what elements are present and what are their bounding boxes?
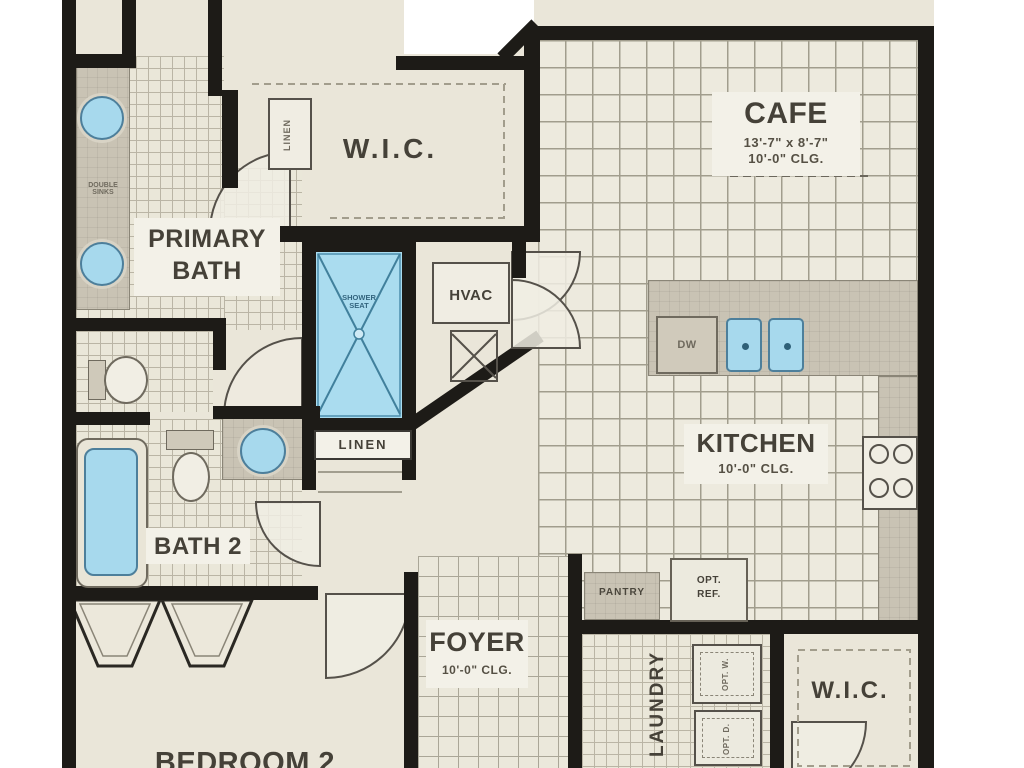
sink-icon <box>80 96 124 140</box>
kitchen-hall-door-arc <box>512 280 580 348</box>
opt-dryer-label: OPT. D. <box>723 717 731 761</box>
dw-label: DW <box>658 340 716 352</box>
primary-bath-label-2: BATH <box>134 258 280 285</box>
bedroom2-door-arc <box>326 594 410 678</box>
linen-closet-hall: LINEN <box>314 430 412 460</box>
wall <box>62 412 150 425</box>
sink-drain <box>742 343 749 350</box>
wall <box>770 634 784 768</box>
linen-upper-label: LINEN <box>283 106 293 164</box>
hall-door-arc <box>224 338 302 416</box>
wall <box>302 418 414 430</box>
cafe-label: CAFE <box>712 98 860 130</box>
sink-icon <box>240 428 286 474</box>
bedroom2-label: BEDROOM 2 <box>120 748 370 768</box>
wall <box>62 0 76 768</box>
wall <box>404 572 418 768</box>
wall <box>524 38 540 242</box>
wall <box>222 90 238 188</box>
foyer-label-box: FOYER 10'-0" CLG. <box>426 620 528 688</box>
wall <box>62 318 226 331</box>
bathtub-basin <box>84 448 138 576</box>
double-sinks-line2: SINKS <box>92 189 113 196</box>
bath2-label-box: BATH 2 <box>146 528 250 564</box>
range-icon <box>862 436 918 510</box>
primary-bath-label-box: PRIMARY BATH <box>134 218 280 296</box>
burner <box>869 478 889 498</box>
bathtub-icon <box>76 438 148 588</box>
burner <box>893 444 913 464</box>
double-sinks-note: DOUBLESINKS <box>74 182 132 197</box>
kitchen-label: KITCHEN <box>684 430 828 458</box>
wall <box>213 406 320 419</box>
linen-closet-upper: LINEN <box>268 98 312 170</box>
floor-plan: DOUBLESINKS DW HVAC CAFE 13'-7" x 8'-7" … <box>0 0 1024 768</box>
wall <box>512 242 526 278</box>
foyer-ceiling: 10'-0" CLG. <box>426 664 528 677</box>
wall <box>568 554 582 768</box>
primary-bath-label-1: PRIMARY <box>134 226 280 253</box>
cafe-label-box: CAFE 13'-7" x 8'-7" 10'-0" CLG. <box>712 92 860 176</box>
shower-note-2: SEAT <box>349 301 368 310</box>
hvac-closet: HVAC <box>432 262 510 324</box>
double-sinks-line1: DOUBLE <box>88 182 118 189</box>
opt-ref-box: OPT. REF. <box>670 558 748 622</box>
laundry-label: LAUNDRY <box>648 640 668 768</box>
wall <box>62 586 318 600</box>
opt-dryer-box: OPT. D. <box>694 710 762 766</box>
bath2-label: BATH 2 <box>146 534 250 559</box>
wall <box>530 26 934 40</box>
kitchen-label-box: KITCHEN 10'-0" CLG. <box>684 424 828 484</box>
dishwasher-icon: DW <box>656 316 718 374</box>
sink-icon <box>80 242 124 286</box>
wall <box>213 318 226 370</box>
linen-hall-label: LINEN <box>316 438 410 452</box>
wall <box>396 56 530 70</box>
toilet-icon <box>104 356 148 404</box>
sink-basin <box>768 318 804 372</box>
wall <box>568 620 934 634</box>
wic1-label: W.I.C. <box>330 134 450 164</box>
sink-basin <box>726 318 762 372</box>
burner <box>869 444 889 464</box>
wall <box>122 0 136 68</box>
opt-ref-label-1: OPT. <box>672 576 746 587</box>
hvac-label: HVAC <box>434 288 508 304</box>
opt-washer-box: OPT. W. <box>692 644 762 704</box>
burner <box>893 478 913 498</box>
cafe-dims: 13'-7" x 8'-7" <box>712 136 860 150</box>
toilet-icon <box>166 430 214 450</box>
hvac-platform <box>450 330 498 382</box>
shower-note: SHOWERSEAT <box>328 294 390 310</box>
opt-washer-label: OPT. W. <box>722 652 730 698</box>
wall <box>918 26 934 768</box>
shower-drain-icon <box>354 329 364 339</box>
wic2-label: W.I.C. <box>795 678 905 703</box>
kitchen-sink-icon <box>726 318 804 372</box>
kitchen-ceiling: 10'-0" CLG. <box>684 462 828 476</box>
wic2-door-arc <box>792 722 866 768</box>
bath2-door-arc <box>256 502 320 566</box>
cafe-ceiling: 10'-0" CLG. <box>712 152 860 166</box>
toilet-icon <box>172 452 210 502</box>
foyer-label: FOYER <box>426 628 528 657</box>
sink-drain <box>784 343 791 350</box>
wall <box>208 0 222 96</box>
opt-ref-label-2: REF. <box>672 590 746 601</box>
wall <box>302 240 414 252</box>
pantry-label: PANTRY <box>584 588 660 599</box>
